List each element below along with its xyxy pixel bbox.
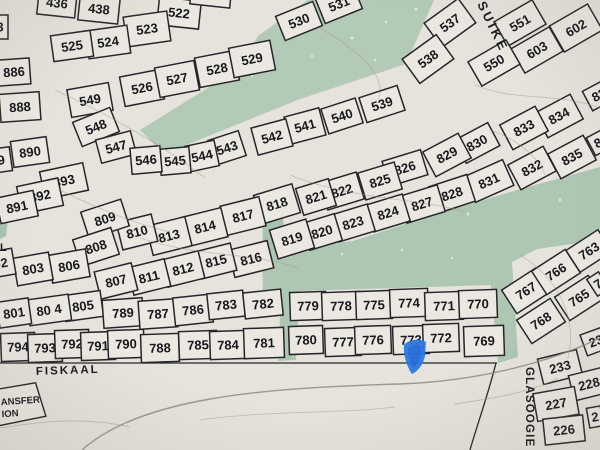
plot-number-label: 780 (295, 332, 317, 348)
plot-number-label: 801 (2, 304, 26, 322)
plot-number-label: 774 (398, 295, 421, 311)
plot-803[interactable]: 803 (13, 252, 53, 286)
plot-545[interactable]: 545 (159, 147, 191, 176)
plot-number-label: 886 (3, 64, 26, 80)
plot-number-label: 779 (297, 298, 319, 314)
plot-769[interactable]: 769 (463, 325, 504, 356)
plot-number-label: 792 (61, 336, 83, 352)
street-label-fiskaal: FISKAAL (36, 364, 100, 378)
plot-number-label: 524 (96, 33, 120, 51)
plot-number-label: 545 (164, 153, 187, 170)
plot-number-label: 793 (34, 340, 56, 356)
plot-number-label: 3 (0, 20, 4, 35)
plot-523[interactable]: 523 (123, 11, 171, 47)
plot-number-label: 794 (7, 339, 30, 355)
plot-number-label: 770 (467, 296, 489, 312)
plot-436[interactable]: 436 (37, 0, 78, 18)
plot-787[interactable]: 787 (138, 299, 178, 330)
street-label-left-partial: L (0, 242, 7, 254)
plot-number-label: 772 (430, 330, 452, 346)
plot-801[interactable]: 801 (0, 298, 32, 328)
plot-number-label: 781 (253, 335, 275, 351)
cadastral-map-canvas: 4364385225215235245253886888890889893892… (0, 0, 600, 450)
plot-number-label: 546 (135, 152, 158, 169)
plot-780[interactable]: 780 (289, 325, 324, 354)
plot-778[interactable]: 778 (322, 291, 361, 320)
plot-804[interactable]: 80 4 (26, 294, 71, 326)
plot-number-label: 805 (71, 297, 95, 315)
plot-number-label: 789 (112, 305, 135, 321)
plot-number-label: 790 (115, 336, 137, 352)
street-label-glasoogie: GLASOOGIE (523, 367, 535, 447)
plot-546[interactable]: 546 (130, 146, 162, 175)
plot-number-label: 784 (217, 337, 240, 353)
plot-number-label: 525 (60, 37, 84, 55)
plot-775[interactable]: 775 (356, 290, 393, 319)
plot-771[interactable]: 771 (425, 291, 464, 320)
plot-770[interactable]: 770 (459, 289, 498, 318)
plot-776[interactable]: 776 (355, 325, 392, 354)
plot-number-label: 523 (135, 20, 159, 38)
plot-226[interactable]: 226 (543, 415, 585, 445)
plot-number-label: 791 (87, 338, 109, 354)
plot-number-label: 778 (330, 298, 352, 314)
plot-438[interactable]: 438 (78, 0, 120, 24)
plot-790[interactable]: 790 (108, 329, 145, 358)
plot-number-label: 888 (9, 99, 32, 115)
plot-number-label: 783 (214, 296, 237, 313)
plot-number-label: 438 (87, 0, 110, 17)
plot-number-label: 786 (181, 301, 204, 318)
plot-number-label: 782 (251, 295, 274, 312)
plot-772[interactable]: 772 (423, 323, 460, 352)
plot-888[interactable]: 888 (0, 92, 41, 123)
plot-number-label: 226 (552, 421, 575, 438)
cadastral-map: 4364385225215235245253886888890889893892… (0, 0, 600, 450)
plot-number-label: 776 (362, 332, 384, 348)
plot-782[interactable]: 782 (243, 289, 284, 319)
plot-number-label: 522 (167, 4, 190, 21)
plot-number-label: 771 (433, 298, 455, 314)
plot-number-label: 769 (473, 333, 495, 349)
plot-784[interactable]: 784 (210, 330, 247, 359)
plot-number-label: 890 (18, 143, 42, 161)
plot-806[interactable]: 806 (48, 249, 90, 283)
plot-783[interactable]: 783 (207, 290, 246, 320)
plot-527[interactable]: 527 (155, 60, 200, 97)
plot-number-label: 785 (187, 337, 209, 353)
plot-781[interactable]: 781 (243, 327, 284, 358)
plot-886[interactable]: 886 (0, 58, 31, 86)
plot-774[interactable]: 774 (390, 288, 429, 317)
plot-number-label: 777 (332, 334, 354, 350)
transfer-station-label-line2: ION (1, 408, 19, 420)
plot-525[interactable]: 525 (50, 30, 93, 61)
plot-890[interactable]: 890 (10, 137, 49, 168)
plot-number-label: 775 (363, 297, 385, 313)
plot-number-label: 787 (147, 306, 170, 322)
plot-number-label: 788 (149, 340, 171, 356)
plot-788[interactable]: 788 (141, 333, 180, 362)
plot-3[interactable]: 3 (0, 15, 8, 39)
